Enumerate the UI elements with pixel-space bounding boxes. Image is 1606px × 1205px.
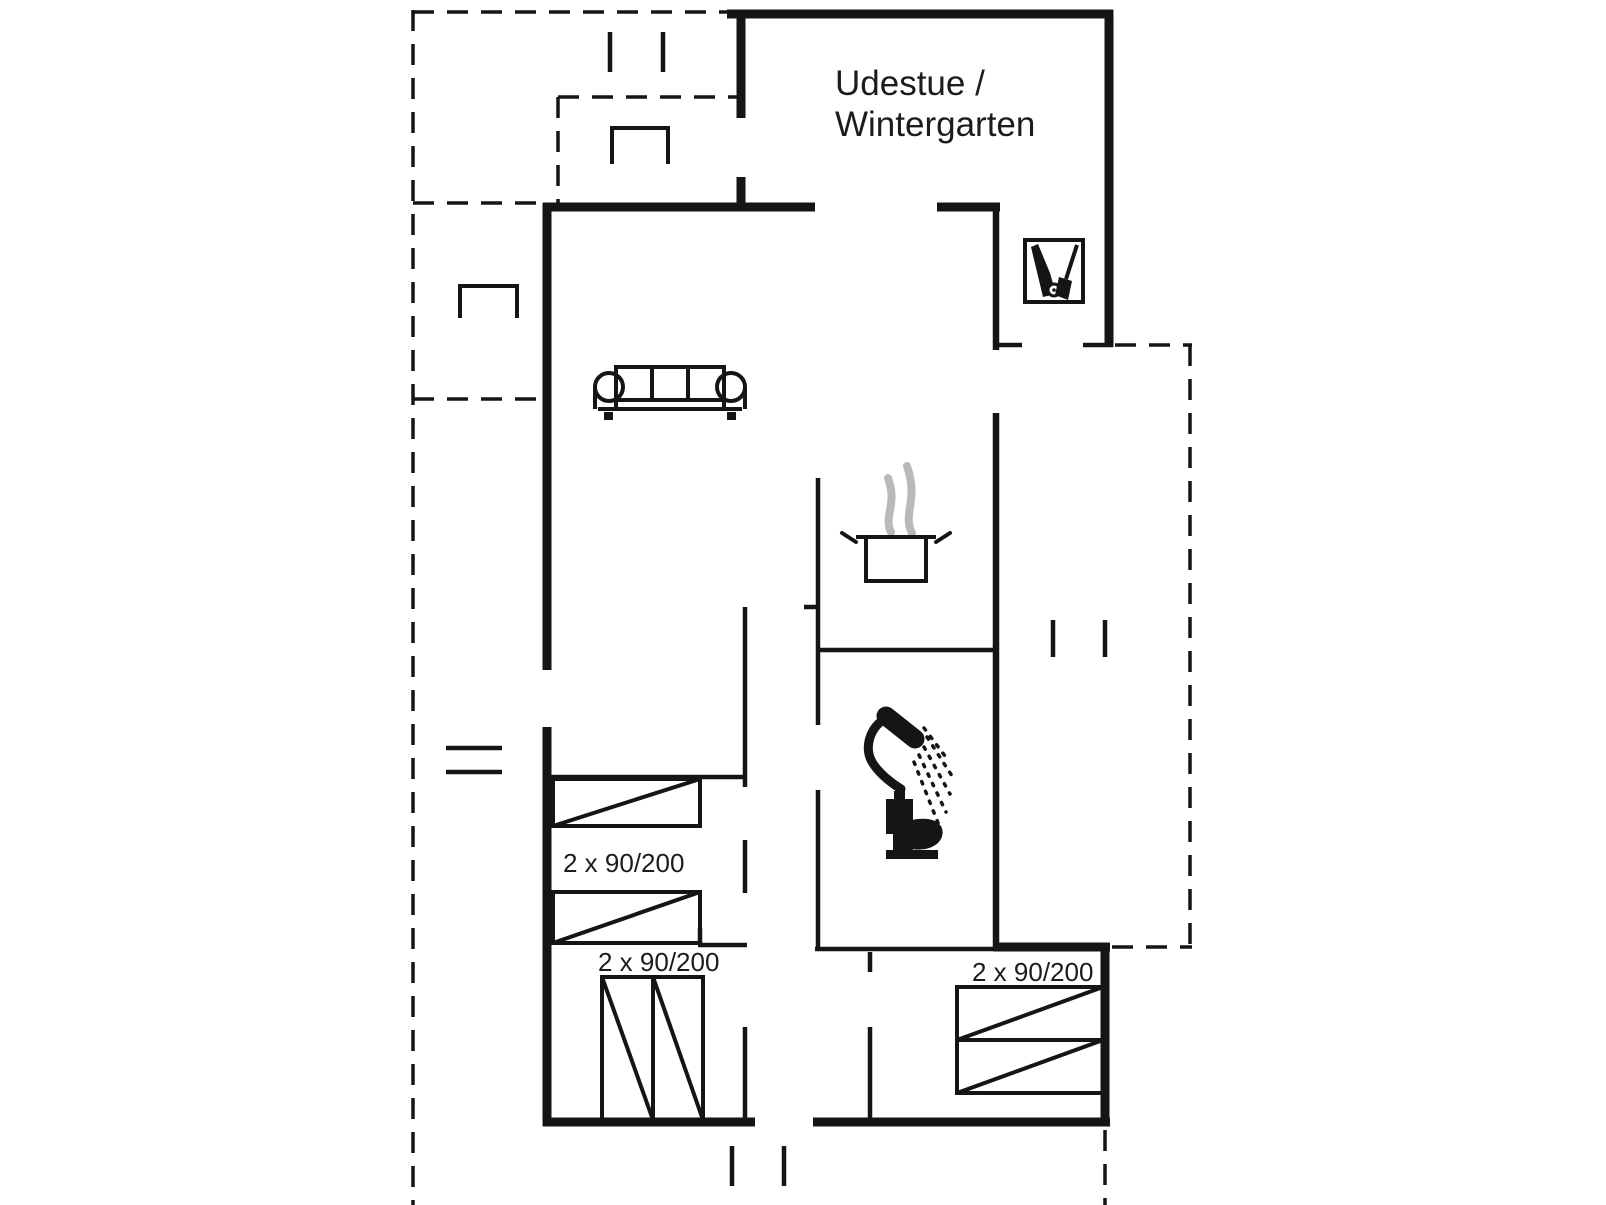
- winter-garden-label-line2: Wintergarten: [835, 105, 1035, 144]
- floor-plan-image: Udestue / Wintergarten 2 x 90/200 2 x 90…: [0, 0, 1606, 1205]
- toilet-icon: [886, 791, 943, 859]
- floor-plan-drawing: Udestue / Wintergarten 2 x 90/200 2 x 90…: [0, 0, 1606, 1205]
- bed-size-label-left-upper: 2 x 90/200: [563, 848, 684, 878]
- bed-icon: [553, 892, 700, 943]
- terrace-dashed-boundary: [413, 10, 1192, 1205]
- bed-size-label-left-lower: 2 x 90/200: [598, 947, 719, 977]
- bed-size-label-right: 2 x 90/200: [972, 957, 1093, 987]
- cleaning-closet-icon: [1025, 240, 1083, 302]
- winter-garden-label-line1: Udestue /: [835, 64, 985, 103]
- garden-table-icons: [460, 128, 668, 318]
- bed-icon: [957, 987, 1103, 1040]
- interior-walls: [550, 345, 1113, 1122]
- garden-table-icon: [612, 128, 668, 164]
- garden-table-icon: [460, 286, 517, 318]
- bed-icon: [653, 977, 703, 1120]
- bed-icon: [602, 977, 653, 1120]
- sofa-icon: [595, 367, 745, 420]
- steam-icon: [888, 466, 912, 533]
- cooking-pot-icon: [842, 466, 950, 581]
- text-labels: Udestue / Wintergarten 2 x 90/200 2 x 90…: [563, 64, 1093, 987]
- bed-icon: [553, 779, 700, 826]
- bed-icon: [957, 1040, 1103, 1093]
